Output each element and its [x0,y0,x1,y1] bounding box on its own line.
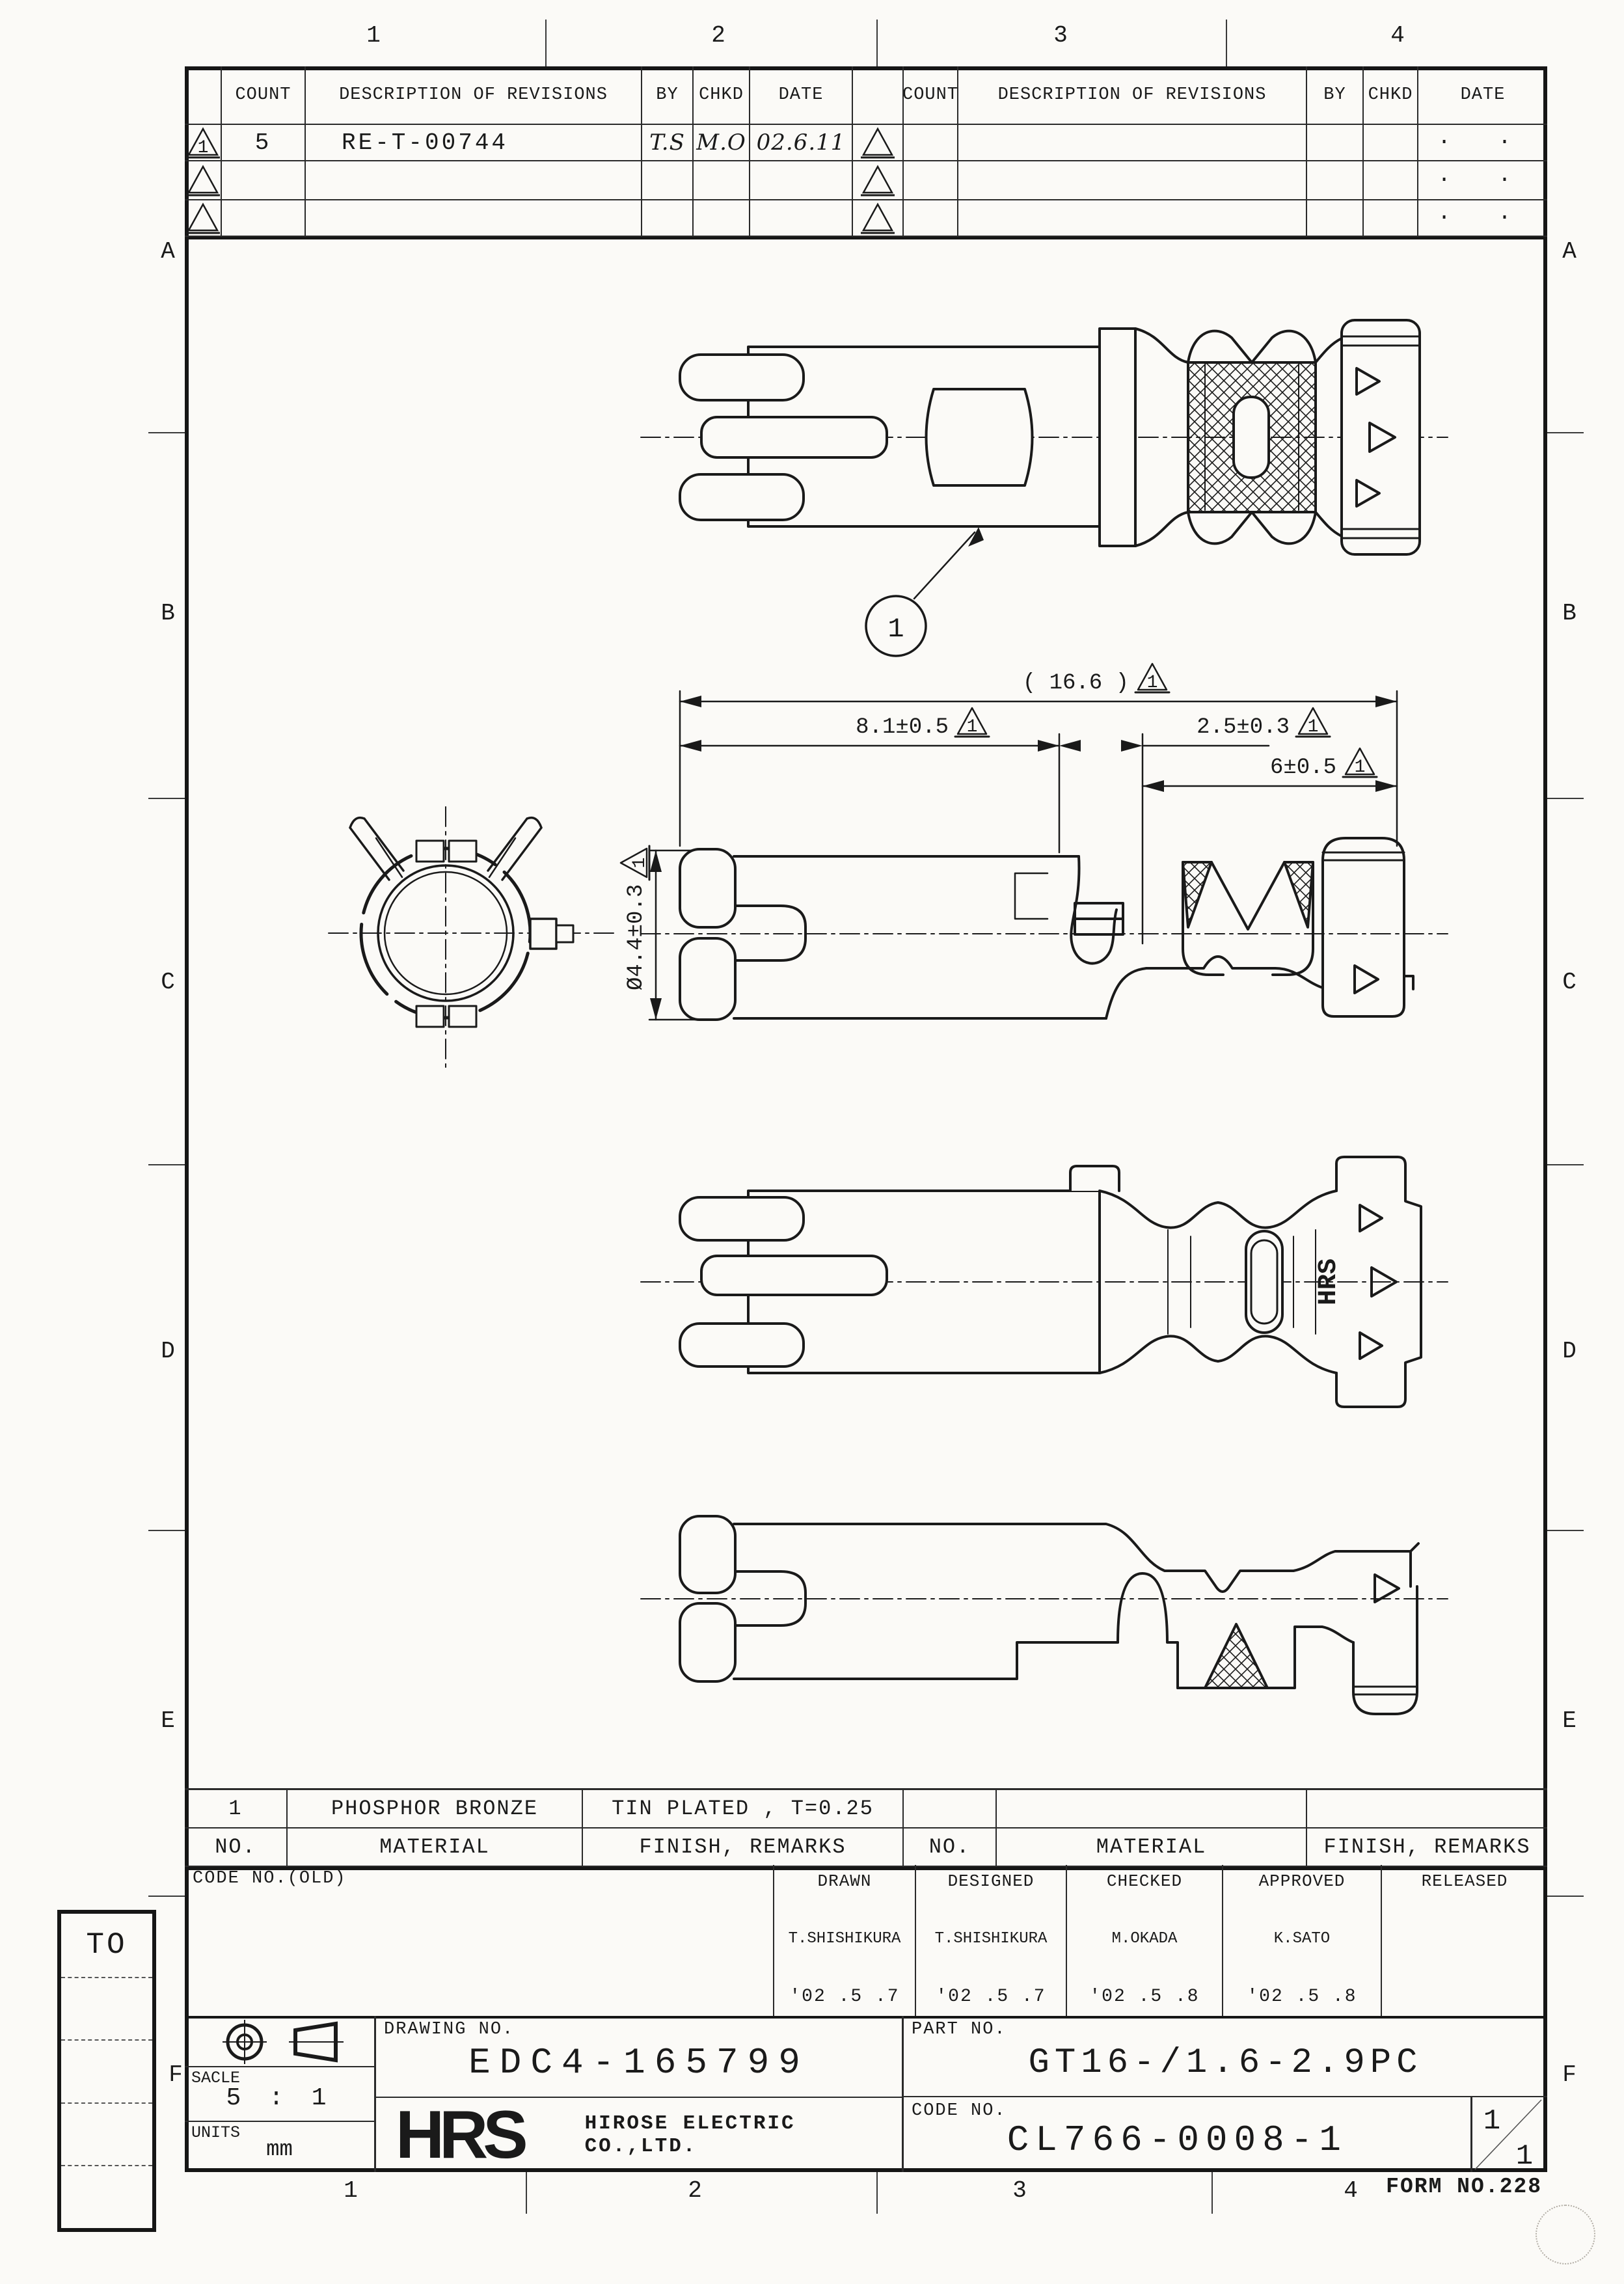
rev-empty [1307,125,1364,161]
right-zone-letter: D [1555,1338,1584,1365]
rev-description-header: DESCRIPTION OF REVISIONS [306,66,642,125]
rev-chkd-header: CHKD [694,66,750,125]
rev-empty [1364,125,1418,161]
rev-chkd-header-2: CHKD [1364,66,1418,125]
scale-cell: SACLE 5 : 1 [185,2067,374,2122]
part-no-label: PART NO. [912,2020,1007,2039]
svg-text:1: 1 [887,614,904,645]
revision-flag-cell [853,200,904,237]
svg-text:1: 1 [1355,757,1366,778]
material-row-finish: TIN PLATED , T=0.25 [583,1790,904,1829]
to-box-empty-row [61,1977,152,2040]
left-zone-letter: A [154,238,182,265]
to-box-empty-row [61,2039,152,2102]
to-box-label: TO [61,1914,152,1977]
margin-tick [148,798,185,799]
rev-date-header: DATE [750,66,853,125]
left-zone-letter: D [154,1338,182,1365]
rev-row-description: RE-T-00744 [306,125,642,161]
svg-text:HRS: HRS [1314,1258,1344,1305]
top-zone-number: 3 [1046,22,1075,49]
svg-text:1: 1 [1516,2140,1533,2172]
drawing-no-label: DRAWING NO. [384,2020,514,2039]
view-side-lower [641,1516,1448,1714]
rev-empty [222,200,306,237]
rev-empty [306,200,642,237]
rev-empty [1307,200,1364,237]
rev-description-header-2: DESCRIPTION OF REVISIONS [958,66,1307,125]
svg-text:1: 1 [967,717,978,737]
approval-col-drawn: DRAWN T.SHISHIKURA '02 .5 .7 [774,1865,916,2016]
approval-col-approved: APPROVED K.SATO '02 .5 .8 [1223,1865,1382,2016]
rev-empty-date: · · [1418,125,1547,161]
to-box-empty-row [61,2165,152,2228]
margin-tick [1547,1530,1584,1531]
margin-tick [876,20,878,66]
svg-text:Ø4.4±0.3: Ø4.4±0.3 [624,884,649,990]
rev-row-by: T.S [642,125,694,161]
right-zone-letter: C [1555,969,1584,996]
rev-empty [306,161,642,200]
to-box-empty-row [61,2102,152,2166]
units-cell: UNITS mm [185,2122,374,2172]
scale-value: 5 : 1 [185,2084,374,2112]
top-zone-number: 2 [704,22,733,49]
material-row-empty [904,1790,997,1829]
drawing-no-value: EDC4-165799 [376,2042,902,2084]
revision-flag-cell [185,161,222,200]
margin-tick [1547,1164,1584,1165]
svg-text:8.1±0.5: 8.1±0.5 [856,715,949,740]
rev-empty [904,200,958,237]
left-zone-letter: B [154,600,182,627]
revision-flag-icon: 1 [186,126,220,159]
svg-text:2.5±0.3: 2.5±0.3 [1197,715,1290,740]
revision-flag-empty-icon [861,164,895,197]
part-no-value: GT16-/1.6-2.9PC [904,2043,1547,2083]
left-zone-letter: E [154,1707,182,1734]
margin-tick [1547,1896,1584,1897]
margin-tick [526,2172,527,2214]
rev-empty [222,161,306,200]
rev-empty [1364,161,1418,200]
rev-empty-date: · · [1418,161,1547,200]
company-name: HIROSE ELECTRIC CO.,LTD. [585,2112,902,2158]
rev-empty [958,200,1307,237]
material-row-empty [1307,1790,1547,1829]
drawing-no-cell: DRAWING NO. EDC4-165799 [376,2016,902,2098]
view-end-ring [329,807,615,1067]
material-row-no: 1 [185,1790,288,1829]
rev-empty [642,200,694,237]
approval-col-checked: CHECKED M.OKADA '02 .5 .8 [1067,1865,1223,2016]
rev-count-header-2: COUNT [904,66,958,125]
rev-empty [694,161,750,200]
form-number: FORM NO.228 [1288,2175,1542,2199]
bottom-zone-number: 1 [336,2177,365,2204]
approvals-block: CODE NO.(OLD) DRAWN T.SHISHIKURA '02 .5 … [185,1865,1547,2019]
sheet-number-diagonal: 1 1 [1472,2097,1544,2172]
drawing-no-block: DRAWING NO. EDC4-165799 HRS HIROSE ELECT… [376,2016,904,2172]
material-header: MATERIAL [288,1829,583,1867]
rev-by-header-2: BY [1307,66,1364,125]
dim-flag-overall: 1 [1135,664,1169,693]
code-no-cell: CODE NO. CL766-0008-1 1 1 [904,2097,1547,2172]
margin-tick [148,432,185,433]
approval-col-released: RELEASED [1382,1865,1547,2016]
view-side-upper [641,838,1448,1020]
svg-text:1: 1 [630,858,650,869]
bottom-zone-number: 3 [1005,2177,1034,2204]
svg-text:1: 1 [1483,2105,1500,2138]
margin-tick [1226,20,1227,66]
margin-tick [1547,798,1584,799]
dim-flag-mid: 1 [1296,708,1330,737]
rev-row-chkd: M.O [694,125,750,161]
code-no-old-label: CODE NO.(OLD) [193,1869,347,1888]
revision-table: COUNT DESCRIPTION OF REVISIONS BY CHKD D… [185,66,1547,239]
material-row-empty [997,1790,1307,1829]
right-zone-letter: A [1555,238,1584,265]
part-no-cell: PART NO. GT16-/1.6-2.9PC [904,2016,1547,2097]
rev-empty [958,125,1307,161]
rev-empty [1307,161,1364,200]
rev-empty [958,161,1307,200]
dim-flag-left: 1 [955,708,989,737]
material-header-2: MATERIAL [997,1829,1307,1867]
approval-col-designed: DESIGNED T.SHISHIKURA '02 .5 .7 [916,1865,1067,2016]
rev-by-header: BY [642,66,694,125]
projection-symbol-cell [185,2016,374,2067]
right-zone-letter: B [1555,600,1584,627]
part-code-block: PART NO. GT16-/1.6-2.9PC CODE NO. CL766-… [904,2016,1547,2172]
revision-flag-cell [185,200,222,237]
material-row-material: PHOSPHOR BRONZE [288,1790,583,1829]
view-plan-top [641,320,1448,554]
revision-flag-empty-icon [861,202,895,234]
revision-flag-cell: 1 [185,125,222,161]
svg-text:( 16.6 ): ( 16.6 ) [1023,671,1129,696]
svg-text:6±0.5: 6±0.5 [1270,755,1336,780]
approval-stamp-icon [1536,2205,1595,2264]
margin-tick [148,1896,185,1897]
view-plan-reverse: HRS [641,1157,1448,1407]
material-finish-header-2: FINISH, REMARKS [1307,1829,1547,1867]
material-finish-header: FINISH, REMARKS [583,1829,904,1867]
rev-date-header-2: DATE [1418,66,1547,125]
rev-empty [1364,200,1418,237]
drawing-sheet: { "sheet": { "top_numbers": ["1","2","3"… [0,0,1624,2284]
rev-flag-col2-header [853,66,904,125]
code-no-old-cell: CODE NO.(OLD) [185,1865,774,2016]
right-zone-letter: E [1555,1707,1584,1734]
revision-flag-empty-icon [186,202,220,234]
rev-row-count: 5 [222,125,306,161]
margin-tick [545,20,547,66]
revision-flag-empty-icon [861,126,895,159]
scale-units-block: SACLE 5 : 1 UNITS mm [185,2016,376,2172]
material-table: 1 PHOSPHOR BRONZE TIN PLATED , T=0.25 NO… [185,1788,1547,1870]
revision-flag-empty-icon [186,164,220,197]
top-zone-number: 4 [1383,22,1412,49]
units-value: mm [185,2138,374,2162]
rev-count-header: COUNT [222,66,306,125]
rev-empty [750,200,853,237]
svg-text:1: 1 [1147,673,1158,693]
revision-flag-cell [853,125,904,161]
to-box: TO [57,1910,156,2232]
hrs-logo: HRS [396,2101,523,2169]
rev-empty [750,161,853,200]
rev-row-date: 02.6.11 [750,125,853,161]
material-no-header: NO. [185,1829,288,1867]
revision-flag-cell [853,161,904,200]
rev-empty [904,161,958,200]
top-zone-number: 1 [359,22,388,49]
sheet-number-box: 1 1 [1470,2097,1542,2172]
dimension-labels: ( 16.6 ) 8.1±0.5 2.5±0.3 6±0.5 Ø4.4±0.3 [624,671,1336,990]
dim-flag-diameter: 1 [621,846,650,880]
left-zone-letter: F [161,2061,190,2088]
company-cell: HRS HIROSE ELECTRIC CO.,LTD. [376,2098,902,2172]
margin-tick [1547,432,1584,433]
rev-empty [904,125,958,161]
balloon-callout: 1 [866,527,984,656]
right-zone-letter: F [1555,2061,1584,2088]
svg-text:1: 1 [197,138,208,158]
margin-tick [148,1164,185,1165]
margin-tick [1211,2172,1213,2214]
margin-tick [148,1530,185,1531]
rev-empty [642,161,694,200]
material-no-header-2: NO. [904,1829,997,1867]
margin-tick [876,2172,878,2214]
rev-empty-date: · · [1418,200,1547,237]
dim-flag-right: 1 [1343,748,1377,778]
svg-text:1: 1 [1308,717,1319,737]
third-angle-projection-icon [185,2016,376,2067]
left-zone-letter: C [154,969,182,996]
rev-empty [694,200,750,237]
code-no-value: CL766-0008-1 [904,2119,1451,2161]
terminal-views-drawing: 1 ( 16.6 ) 8.1±0.5 2.5±0.3 6±0.5 Ø4.4±0.… [325,293,1470,1789]
bottom-zone-number: 2 [681,2177,709,2204]
code-no-label: CODE NO. [912,2101,1007,2121]
rev-flag-col-header [185,66,222,125]
